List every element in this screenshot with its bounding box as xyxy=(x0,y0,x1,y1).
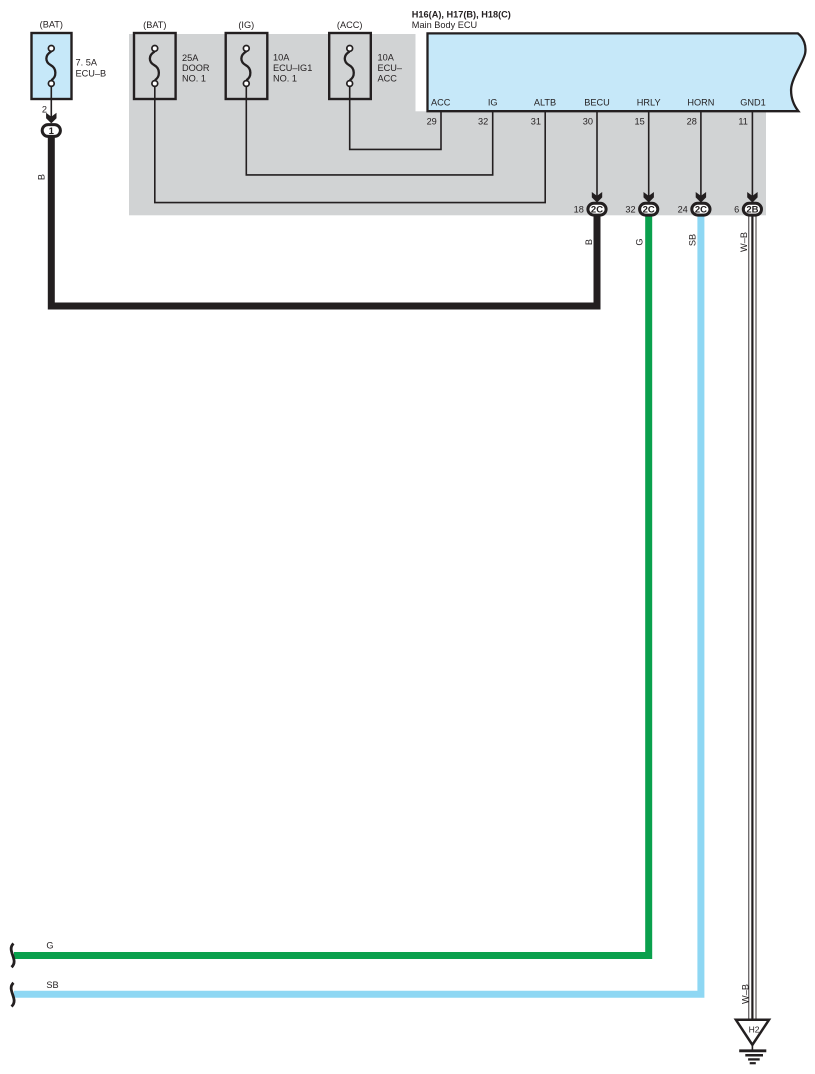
svg-text:B: B xyxy=(37,174,47,180)
svg-text:31: 31 xyxy=(531,117,541,127)
svg-text:10A: 10A xyxy=(273,53,290,63)
svg-text:2C: 2C xyxy=(643,205,655,216)
svg-text:2C: 2C xyxy=(591,205,603,216)
svg-text:18: 18 xyxy=(574,205,584,215)
svg-text:BECU: BECU xyxy=(584,98,610,108)
svg-text:NO. 1: NO. 1 xyxy=(273,73,297,83)
svg-text:HRLY: HRLY xyxy=(637,98,661,108)
svg-text:W–B: W–B xyxy=(741,984,751,1004)
svg-text:29: 29 xyxy=(427,117,437,127)
svg-text:(BAT): (BAT) xyxy=(40,20,63,30)
svg-text:SB: SB xyxy=(46,980,58,990)
svg-text:28: 28 xyxy=(687,117,697,127)
svg-text:SB: SB xyxy=(687,234,697,246)
svg-text:2C: 2C xyxy=(695,205,707,216)
svg-text:G: G xyxy=(635,238,645,245)
svg-text:ECU–B: ECU–B xyxy=(76,69,107,79)
svg-text:H16(A), H17(B), H18(C): H16(A), H17(B), H18(C) xyxy=(412,10,511,20)
svg-text:NO. 1: NO. 1 xyxy=(182,73,206,83)
svg-text:25A: 25A xyxy=(182,53,199,63)
svg-text:15: 15 xyxy=(634,117,644,127)
svg-text:11: 11 xyxy=(738,117,748,127)
svg-text:6: 6 xyxy=(734,205,739,215)
svg-text:ECU–: ECU– xyxy=(378,63,403,73)
svg-text:ALTB: ALTB xyxy=(534,98,556,108)
svg-text:(ACC): (ACC) xyxy=(337,20,363,30)
svg-text:ACC: ACC xyxy=(378,73,398,83)
svg-text:HORN: HORN xyxy=(687,98,714,108)
svg-text:ECU–IG1: ECU–IG1 xyxy=(273,63,312,73)
svg-text:GND1: GND1 xyxy=(740,98,766,108)
svg-text:2B: 2B xyxy=(746,205,758,216)
svg-text:(IG): (IG) xyxy=(238,20,254,30)
svg-text:7. 5A: 7. 5A xyxy=(76,58,98,68)
svg-text:32: 32 xyxy=(478,117,488,127)
svg-text:32: 32 xyxy=(625,205,635,215)
svg-text:24: 24 xyxy=(678,205,688,215)
svg-text:(BAT): (BAT) xyxy=(143,20,166,30)
svg-text:Main Body ECU: Main Body ECU xyxy=(412,20,477,30)
svg-text:H2: H2 xyxy=(749,1025,760,1035)
svg-text:W–B: W–B xyxy=(739,232,749,252)
svg-text:ACC: ACC xyxy=(431,98,451,108)
svg-text:B: B xyxy=(584,239,594,245)
svg-text:1: 1 xyxy=(49,126,55,137)
svg-text:10A: 10A xyxy=(378,53,395,63)
svg-text:DOOR: DOOR xyxy=(182,63,210,73)
svg-text:30: 30 xyxy=(583,117,593,127)
svg-text:G: G xyxy=(46,941,53,951)
svg-text:IG: IG xyxy=(488,98,498,108)
